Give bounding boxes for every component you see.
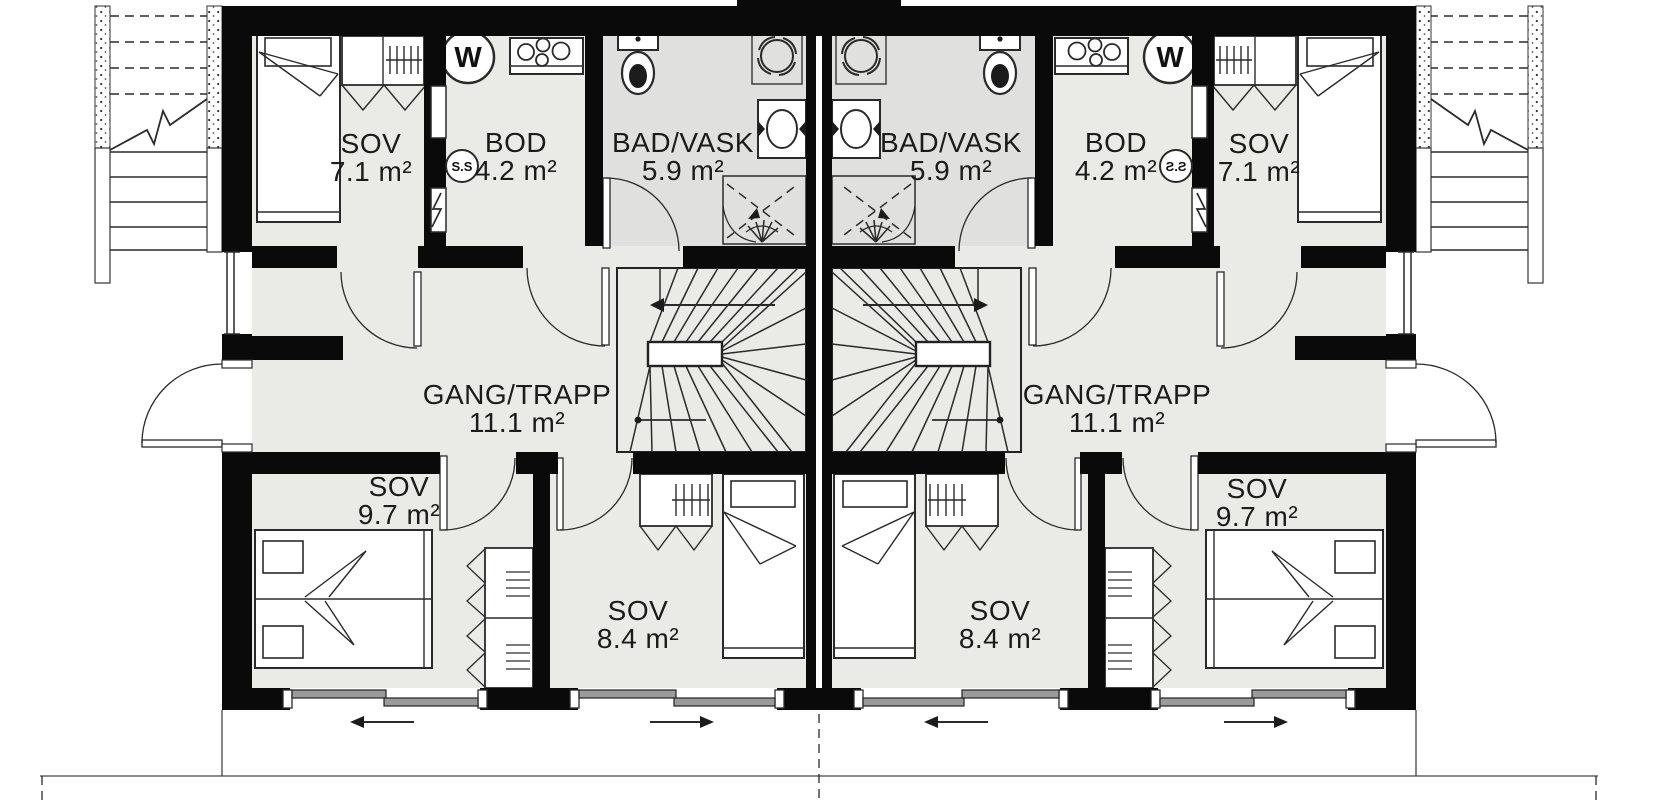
room-label-bod-right: BOD4.2 m²	[1075, 129, 1157, 185]
room-label-sov-7-left: SOV7.1 m²	[330, 130, 412, 186]
exterior-stair-icon	[95, 6, 222, 283]
double-bed-icon	[255, 530, 432, 668]
room-label-sov-97-left: SOV9.7 m²	[358, 473, 440, 529]
entry-door-icon	[142, 364, 222, 447]
center-shaft	[737, 0, 901, 36]
ventilation-fan-icon	[752, 28, 802, 84]
room-label-sov-97-right: SOV9.7 m²	[1216, 475, 1298, 531]
door-jamb	[222, 444, 252, 452]
washer-icon	[758, 100, 806, 158]
room-label-gang-right: GANG/TRAPP11.1 m²	[1023, 381, 1212, 437]
window-icon	[224, 252, 240, 334]
floor-plan: W	[0, 0, 1670, 800]
door-jamb	[222, 360, 252, 368]
single-bed-icon	[257, 28, 340, 222]
floor-plan-svg: W	[0, 0, 1670, 800]
stove-icon	[510, 38, 583, 74]
room-label-gang-left: GANG/TRAPP11.1 m²	[423, 381, 612, 437]
room-label-sov-84-left: SOV8.4 m²	[597, 597, 679, 653]
svg-text:W: W	[454, 42, 482, 74]
room-label-bod-left: BOD4.2 m²	[475, 129, 557, 185]
svg-text:S.S: S.S	[452, 159, 473, 174]
room-label-sov-7-right: SOV7.1 m²	[1218, 130, 1300, 186]
room-label-sov-84-right: SOV8.4 m²	[959, 597, 1041, 653]
sliding-window-icon	[283, 690, 487, 728]
washing-machine-symbol-icon: W	[442, 31, 494, 83]
sliding-window-icon	[570, 690, 784, 728]
stair-icon	[617, 268, 806, 452]
single-bed-icon	[723, 474, 804, 658]
room-label-bad-right: BAD/VASK5.9 m²	[880, 129, 1022, 185]
room-label-bad-left: BAD/VASK5.9 m²	[612, 129, 754, 185]
toilet-icon	[618, 28, 658, 94]
fuse-box-label-icon: S.S	[446, 150, 478, 182]
